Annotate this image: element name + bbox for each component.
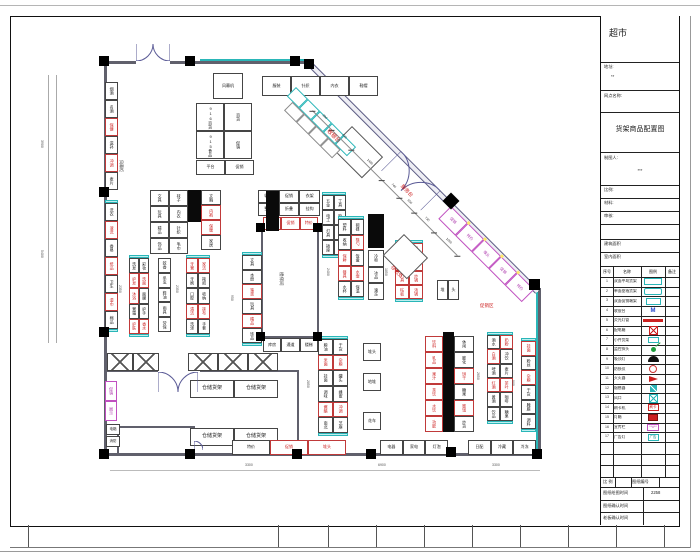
- shelf-cell: 鞋帽: [349, 76, 378, 96]
- legend-name: 监控探头: [614, 347, 641, 352]
- shelf-cell: 纸品: [105, 257, 118, 275]
- legend-name: 烟感器: [614, 386, 641, 391]
- shelf-cell-label: 915食品: [208, 134, 212, 157]
- shelf-cell-label: 文具: [250, 258, 254, 266]
- legend-row-line: [601, 384, 679, 385]
- shelf-endcap: [242, 343, 262, 346]
- display-shelf: 促销展示: [105, 381, 117, 421]
- shelf-cell-label: 衣架: [306, 194, 314, 198]
- shelf-cell: 腌腊: [521, 400, 536, 415]
- shelf-cell: 家洁: [198, 258, 210, 273]
- shelf-cell-label: 酒水: [491, 338, 495, 346]
- shelf-cell-label: 糖果: [462, 388, 466, 396]
- shelf-cell-label: 促销: [109, 387, 113, 395]
- promo-table: 堆头: [363, 343, 381, 361]
- legend-symbol: [641, 296, 665, 306]
- shelf-cell: 杂粮: [521, 370, 536, 385]
- shelf-cell-label: 劳保: [162, 321, 166, 329]
- shelf-cell-label: 黄酒: [491, 395, 495, 403]
- legend-name: 灯箱: [614, 415, 641, 420]
- shelf-cell: 护肤: [129, 319, 139, 334]
- shelf-cell: 名酒: [105, 100, 118, 118]
- legend-symbol: 刷卡: [641, 403, 665, 413]
- shelf-cell: 雨具: [158, 302, 171, 317]
- shelf-cell: 果汁: [425, 368, 443, 384]
- shelf-cell: 饭盒: [351, 250, 364, 266]
- legend-symbol: [641, 364, 665, 374]
- gondola: 牙膏牙刷口腔清洁洗涤家洁拖把收纳抹布手套: [186, 255, 210, 337]
- shelf-cell-label: 咖啡: [504, 395, 508, 403]
- shelf-cell: 调料: [521, 414, 536, 429]
- shelf-cell: 文胸: [201, 190, 221, 205]
- promo-cell-label: 促销: [499, 267, 507, 275]
- shelf-cell-label: 风幕机: [222, 84, 234, 88]
- legend-no: 7: [601, 337, 613, 341]
- promo-platform: 平台促销: [196, 160, 254, 175]
- shelf-cell-label: 红酒: [491, 381, 495, 389]
- shelf-cell: 干货: [521, 385, 536, 400]
- column: [99, 327, 109, 337]
- title-block: 超市 地址: ** 网点名称: 货架商品配置图 制图人: *** 比例: 材料:…: [600, 16, 679, 525]
- shelf-cell-label: 调料: [526, 418, 530, 426]
- strip-tick: [472, 525, 473, 547]
- shelf-cell: 杂粮: [333, 355, 348, 371]
- shelf-cell-label: 楼梯: [305, 343, 313, 347]
- shelf-cell: 液洗: [105, 221, 118, 239]
- shelf-cell-label: 饮品: [491, 410, 495, 418]
- shelf-cell: 百货: [224, 103, 252, 131]
- red-flag-icon: [649, 376, 658, 382]
- shelf-cell-label: 冲调: [338, 405, 342, 413]
- shelf-cell: 口腔: [186, 288, 198, 303]
- shelf-cell-label: 茶饮: [432, 388, 436, 396]
- storage-corner-shelf: [107, 353, 159, 371]
- legend-row-line: [601, 306, 679, 307]
- shelf-cell-label: 916百货: [208, 106, 212, 129]
- shelf-cell: 促销: [224, 131, 252, 159]
- shelf-cell: 挂钩: [299, 203, 320, 216]
- shelf-cell: 功能: [425, 416, 443, 432]
- legend-row-line: [601, 454, 679, 455]
- shelf-cell-label: 口腔: [190, 292, 194, 300]
- shelf-cell: 平台: [196, 160, 225, 175]
- shelf-cell: 促销: [225, 160, 254, 175]
- shelf-cell-label: 保暖: [209, 224, 213, 232]
- shelf-cell: 南北: [318, 417, 333, 433]
- shelf-cell: 五金: [322, 195, 334, 210]
- shelf-cell-label: 折叠: [285, 207, 293, 211]
- promo-cell-label: 堆头: [482, 250, 490, 258]
- shelf-cell-label: 粉丝: [526, 359, 530, 367]
- shelf-cell-label: 面膜: [142, 292, 146, 300]
- shelf-cell: 酒水: [487, 335, 500, 349]
- shelf-cell-label: 促销: [236, 141, 240, 149]
- shelf-endcap: [129, 334, 149, 337]
- legend-symbol: [641, 345, 665, 355]
- shelf-cell: 膨化: [454, 352, 474, 368]
- dim-text: 900: [511, 380, 515, 386]
- shelf-cell-label: 碗碟: [355, 223, 359, 231]
- shelf-cell-label: 烟酒: [109, 87, 113, 95]
- shelf-cell-label: 卫生: [109, 280, 113, 288]
- shelf-cell: 干货: [333, 339, 348, 355]
- shelf-cell: 鞋油: [158, 288, 171, 303]
- dim-ext-line: [110, 470, 540, 471]
- shelf-cell-label: 洗衣: [109, 208, 113, 216]
- legend-symbol: [641, 374, 665, 384]
- shelf-cell: 牙刷: [186, 273, 198, 288]
- green-dot-icon: [651, 347, 656, 352]
- title-block-divider: [601, 500, 679, 501]
- x-cell: [218, 353, 248, 371]
- shelf-cell-label: 棉品: [109, 316, 113, 324]
- shelf-cell-label: 炒锅: [414, 274, 418, 282]
- legend-name: 双面中岛货架: [614, 279, 641, 284]
- shelf-cell-label: 休闲: [462, 340, 466, 348]
- shelf-cell: 调味: [318, 386, 333, 402]
- shelf-cell-label: 蜜饯: [462, 404, 466, 412]
- shelf-cell-label: 酱醋: [323, 405, 327, 413]
- x-cell: [107, 353, 133, 371]
- legend-name: 灭火器: [614, 376, 641, 381]
- shelf-cell-label: 杂粮: [338, 358, 342, 366]
- column: [99, 56, 109, 66]
- shelf-cell: 插座: [322, 240, 334, 255]
- shelf-cell: 袜子: [169, 190, 188, 206]
- legend-name: 收银台: [614, 309, 641, 314]
- shelf-cell: 休闲: [454, 336, 474, 352]
- shelf-cell-label: 促销: [236, 165, 244, 169]
- shelf-cell-label: 笔类: [250, 288, 254, 296]
- shelf-cell-label: 冲饮: [504, 352, 508, 360]
- shelf-cell-label: 调味: [323, 390, 327, 398]
- shelf-cell-label: 文具: [157, 194, 161, 202]
- shelf-cell: 精品: [150, 222, 169, 238]
- shelf-cell-label: 香水: [142, 322, 146, 330]
- cyan-textbox-icon: 广告: [648, 434, 659, 441]
- shelf-block-filled: [266, 191, 279, 231]
- shelf-cell-label: 罐头: [338, 374, 342, 382]
- confirm-time-label: 图纸确认时间: [603, 503, 628, 509]
- strip-tick: [376, 525, 377, 547]
- promo-cell-label: 特价: [466, 233, 474, 241]
- shelf-cell: 奶粉: [500, 335, 513, 349]
- cyan-small-icon: [648, 337, 659, 343]
- shelf-cell: 精品: [242, 314, 262, 329]
- shelf-cell: 工具: [334, 195, 346, 210]
- shelf-cell: 红酒: [487, 378, 500, 392]
- legend-row-line: [601, 364, 679, 365]
- shelf-cell: 餐具: [338, 266, 351, 282]
- shelf-cell-label: 灯具: [326, 229, 330, 237]
- shelf-cell-label: 保健: [109, 123, 113, 131]
- shelf-cell: 电工: [322, 210, 334, 225]
- shelf-cell: 家居: [201, 235, 221, 250]
- shelf-cell: 挂面: [521, 341, 536, 356]
- shelf-cell-label: 炒货: [462, 420, 466, 428]
- shelf-cell: 灯具: [322, 225, 334, 240]
- legend-row-line: [601, 442, 679, 443]
- shelf-cell-label: 促销: [285, 194, 293, 198]
- shelf-cell: 粉丝: [521, 356, 536, 371]
- shelf-cell: 冲调: [333, 402, 348, 418]
- shelf-cell-label: 饭盒: [355, 254, 359, 262]
- shelf-cell-label: 速冻: [374, 288, 378, 296]
- shelf-cell: 洗涤: [186, 319, 198, 334]
- legend-grid-line: [601, 277, 679, 278]
- dim-text: 2850: [306, 380, 310, 388]
- end-cap-shelf: 库房通道楼梯: [263, 338, 318, 352]
- shelf-cell-label: 名酒: [109, 105, 113, 113]
- shelf-block-filled: [188, 190, 201, 222]
- legend-header: 备注: [665, 269, 679, 275]
- gondola: 休闲膨化饼干糖果蜜饯炒货: [454, 336, 474, 432]
- shelf-cell-label: 玩具: [157, 210, 161, 218]
- shelf-cell: 日配: [468, 440, 491, 455]
- shelf-cell: 速冻: [368, 283, 384, 300]
- sheet-no-label: 图纸编号: [632, 479, 649, 485]
- dim-text: 3300: [492, 463, 500, 467]
- boss-confirm-label: 老板确认时间: [603, 515, 628, 521]
- strip-tick: [28, 525, 29, 547]
- shelf-cell: 堆头: [363, 343, 381, 361]
- shelf-endcap: [395, 299, 423, 302]
- title-block-divider: [659, 477, 660, 487]
- shelf-cell-label: 促销: [286, 221, 294, 225]
- utility-box: 消防: [106, 436, 120, 447]
- shelf-cell: 芝麻: [333, 417, 348, 433]
- door-swing: [136, 44, 170, 61]
- shelf-cell: 香水: [139, 319, 149, 334]
- shelf-cell-label: 挂面: [526, 344, 530, 352]
- gondola: 粮油米面挂面调味酱醋南北干货杂粮罐头蜂蜜冲调芝麻: [318, 336, 348, 436]
- shelf-cell-label: 芝麻: [338, 421, 342, 429]
- dim-tick: [349, 150, 355, 151]
- shelf-cell-label: 膨化: [462, 356, 466, 364]
- door-arc-icon: [158, 372, 198, 392]
- shelf-cell-label: 内衣: [331, 84, 339, 88]
- legend-symbol: 广告: [641, 432, 665, 442]
- shelf-cell: 茶饮: [425, 384, 443, 400]
- shelf-cell-label: 彩妆: [142, 262, 146, 270]
- shelf-cell-label: 啤酒: [491, 367, 495, 375]
- wall-shelf-left: 洗衣液洗香皂纸品卫生湿巾棉品: [105, 200, 118, 332]
- shelf-cell-label: 平台: [207, 165, 215, 169]
- shelf-cell: 冷柜: [368, 250, 384, 267]
- shelf-cell: 咖啡: [500, 392, 513, 406]
- legend-name: 小件货架: [614, 338, 641, 343]
- shelf-cell: 沐浴: [129, 288, 139, 303]
- legend-no: 15: [601, 415, 613, 419]
- title-block-divider: [601, 512, 679, 513]
- shelf-cell: 折叠: [279, 203, 300, 216]
- dim-text: 2650: [476, 372, 480, 380]
- shelf-cell-label: 杀虫: [162, 276, 166, 284]
- shelf-cell: 收纳: [198, 288, 210, 303]
- legend-name: 风口: [614, 396, 641, 401]
- stair-label: 楼梯间: [278, 272, 284, 286]
- legend-name: 单面靠墙货架: [614, 289, 641, 294]
- legend-no: 16: [601, 425, 613, 429]
- column: [256, 223, 265, 232]
- shelf-cell-label: 洗发: [132, 262, 136, 270]
- column: [304, 59, 314, 69]
- shelf-cell-label: 挂钩: [306, 207, 314, 211]
- shelf-cell-label: 鞋帽: [360, 84, 368, 88]
- legend-symbol: [641, 393, 665, 403]
- room-wall: [117, 426, 195, 428]
- x-cell: [188, 353, 218, 371]
- shelf-cell-label: 筷勺: [355, 238, 359, 246]
- shelf-cell-label: 南北: [323, 421, 327, 429]
- door-swing: [381, 151, 440, 210]
- red-ring-icon: [649, 365, 657, 373]
- column: [446, 447, 456, 457]
- shelf-cell: 保暖: [201, 220, 221, 235]
- shelf-cell: 劳保: [158, 317, 171, 332]
- shelf-cell-label: 牙膏: [190, 262, 194, 270]
- shelf-cell-label: 餐具: [342, 270, 346, 278]
- shelf-cell-label: 特价: [305, 221, 313, 225]
- shelf-cell: 手套: [198, 319, 210, 334]
- shelf-cell-label: 冰品: [374, 271, 378, 279]
- shelf-cell-label: 抹布: [202, 307, 206, 315]
- shelf-cell-label: 麦片: [504, 367, 508, 375]
- dim-text: 5400: [40, 250, 44, 258]
- shelf-cell: 糖果: [454, 384, 474, 400]
- shelf-cell-label: 麦片: [109, 177, 113, 185]
- shelf-cell-label: 堆: [441, 288, 445, 292]
- shelf-endcap: [338, 297, 364, 300]
- shelf-cell-label: 乳品: [432, 356, 436, 364]
- shelf-cell-label: 地堆: [368, 380, 376, 384]
- shelf-cell-label: 家洁: [202, 262, 206, 270]
- shelf-cell-label: 汤锅: [414, 288, 418, 296]
- shelf-cell: 冲饮: [500, 349, 513, 363]
- shelf-cyan2-icon: [644, 288, 662, 295]
- shelf-cell: 文具: [150, 190, 169, 206]
- shelf-endcap: [186, 334, 210, 337]
- shelf-cell-label: 米面: [323, 358, 327, 366]
- column: [185, 56, 195, 66]
- shelf-cell-label: 通道: [286, 343, 294, 347]
- strip-tick: [328, 525, 329, 547]
- dim-text: 3300: [245, 463, 253, 467]
- shelf-cell: 饰品: [150, 238, 169, 254]
- shelf-cell: 洗面: [139, 273, 149, 288]
- shelf-cell: 电箱: [106, 424, 120, 435]
- shelf-cell-label: 堆头: [323, 445, 331, 449]
- shelf-cell-label: 文胸: [209, 194, 213, 202]
- shelf-cell: 护手: [139, 304, 149, 319]
- shelf-cell-label: 茶叶: [504, 381, 508, 389]
- shelf-cell: 乳品: [425, 352, 443, 368]
- shelf-cell-label: 护手: [142, 307, 146, 315]
- x-cell: [133, 353, 159, 371]
- dim-text: 1850: [384, 268, 388, 276]
- shelf-block-filled: [443, 332, 454, 432]
- shelf-cell: 灯泡: [425, 440, 448, 455]
- shelf-cell-label: 头: [452, 288, 456, 292]
- shelf-cell-label: 饰品: [250, 332, 254, 340]
- title-block-divider: [615, 477, 616, 487]
- shelf-cell: 冲调: [105, 154, 118, 172]
- red-fill-icon: [648, 414, 658, 421]
- shelf-cell-label: 腌腊: [526, 403, 530, 411]
- strip-tick: [616, 525, 617, 547]
- shelf-cell-label: 滋补: [109, 141, 113, 149]
- shelf-cell-label: 砧板: [400, 288, 404, 296]
- shelf-cell-label: 工具: [338, 199, 342, 207]
- shelf-cell: 内裤: [201, 205, 221, 220]
- legend-symbol: **#**: [641, 423, 665, 433]
- column: [185, 449, 195, 459]
- legend-no: 3: [601, 298, 613, 302]
- shelf-cell: 抹布: [198, 304, 210, 319]
- shelf-cell: 风幕机: [213, 73, 243, 99]
- shelf-cell: 衣架: [299, 190, 320, 203]
- sheet-bottom-rule: [0, 551, 700, 552]
- shelf-cell: 地堆: [363, 373, 381, 391]
- shelf-cell: 冰品: [368, 267, 384, 284]
- shelf-cell: 促销: [279, 190, 300, 203]
- title-block-divider: [643, 487, 644, 525]
- wall-shelf-bottom: 特价促销堆头: [232, 440, 346, 455]
- shelf-cell: 蚊香: [158, 258, 171, 273]
- shelf-cell: 水杯: [338, 281, 351, 297]
- shelf-cell: 针织: [169, 222, 188, 238]
- legend-name: 宣传栏: [614, 425, 641, 430]
- gondola: 塑料收纳保鲜餐具水杯碗碟筷勺饭盒水壶保温: [338, 216, 364, 300]
- legend-name: 广告灯: [614, 435, 641, 440]
- shelf-cell-label: 蚊香: [162, 261, 166, 269]
- promo-table: 花车: [363, 412, 381, 430]
- legend-no: 9: [601, 357, 613, 361]
- dim-text: 2400: [326, 268, 330, 276]
- shelf-cell-label: 奶粉: [504, 338, 508, 346]
- shelf-cell: 湿巾: [105, 293, 118, 311]
- shelf-cell: 花车: [363, 412, 381, 430]
- column: [292, 449, 302, 459]
- legend-symbol: [641, 335, 665, 345]
- column: [366, 449, 376, 459]
- title-block-divider: [601, 477, 679, 478]
- shelf-cell-label: 百货: [236, 113, 240, 121]
- legend-symbol: [641, 316, 665, 326]
- gondola: 饮料乳品果汁茶饮水饮功能: [425, 336, 443, 432]
- gondola: 文胸内裤保暖家居: [201, 190, 221, 250]
- shelf-cell-label: 针织: [302, 84, 310, 88]
- legend-symbol: M: [641, 306, 665, 316]
- shelf-endcap: [487, 421, 513, 424]
- utility-box: 电箱: [106, 424, 120, 435]
- promo-table: 堆头: [437, 280, 459, 300]
- shelf-cell-label: 粮油: [323, 343, 327, 351]
- shelf-cell-label: 冲调: [109, 159, 113, 167]
- legend-name: 刷卡机: [614, 406, 641, 411]
- legend-symbol: [641, 384, 665, 394]
- shelf-cell-label: 蜂蜜: [338, 390, 342, 398]
- shelf-cyan3-icon: [646, 298, 661, 305]
- promo-cell-label: 特价: [516, 283, 524, 291]
- shelf-endcap: [318, 433, 348, 436]
- wall-shelf-bottom: 日配冷藏冷冻: [468, 440, 536, 455]
- shelf-cell-label: 本册: [250, 273, 254, 281]
- dim-tick: [432, 232, 438, 233]
- shelf-cell-label: 收纳: [202, 292, 206, 300]
- shelf-cell-label: 冷柜: [374, 254, 378, 262]
- shelf-cell: 通道: [281, 338, 299, 352]
